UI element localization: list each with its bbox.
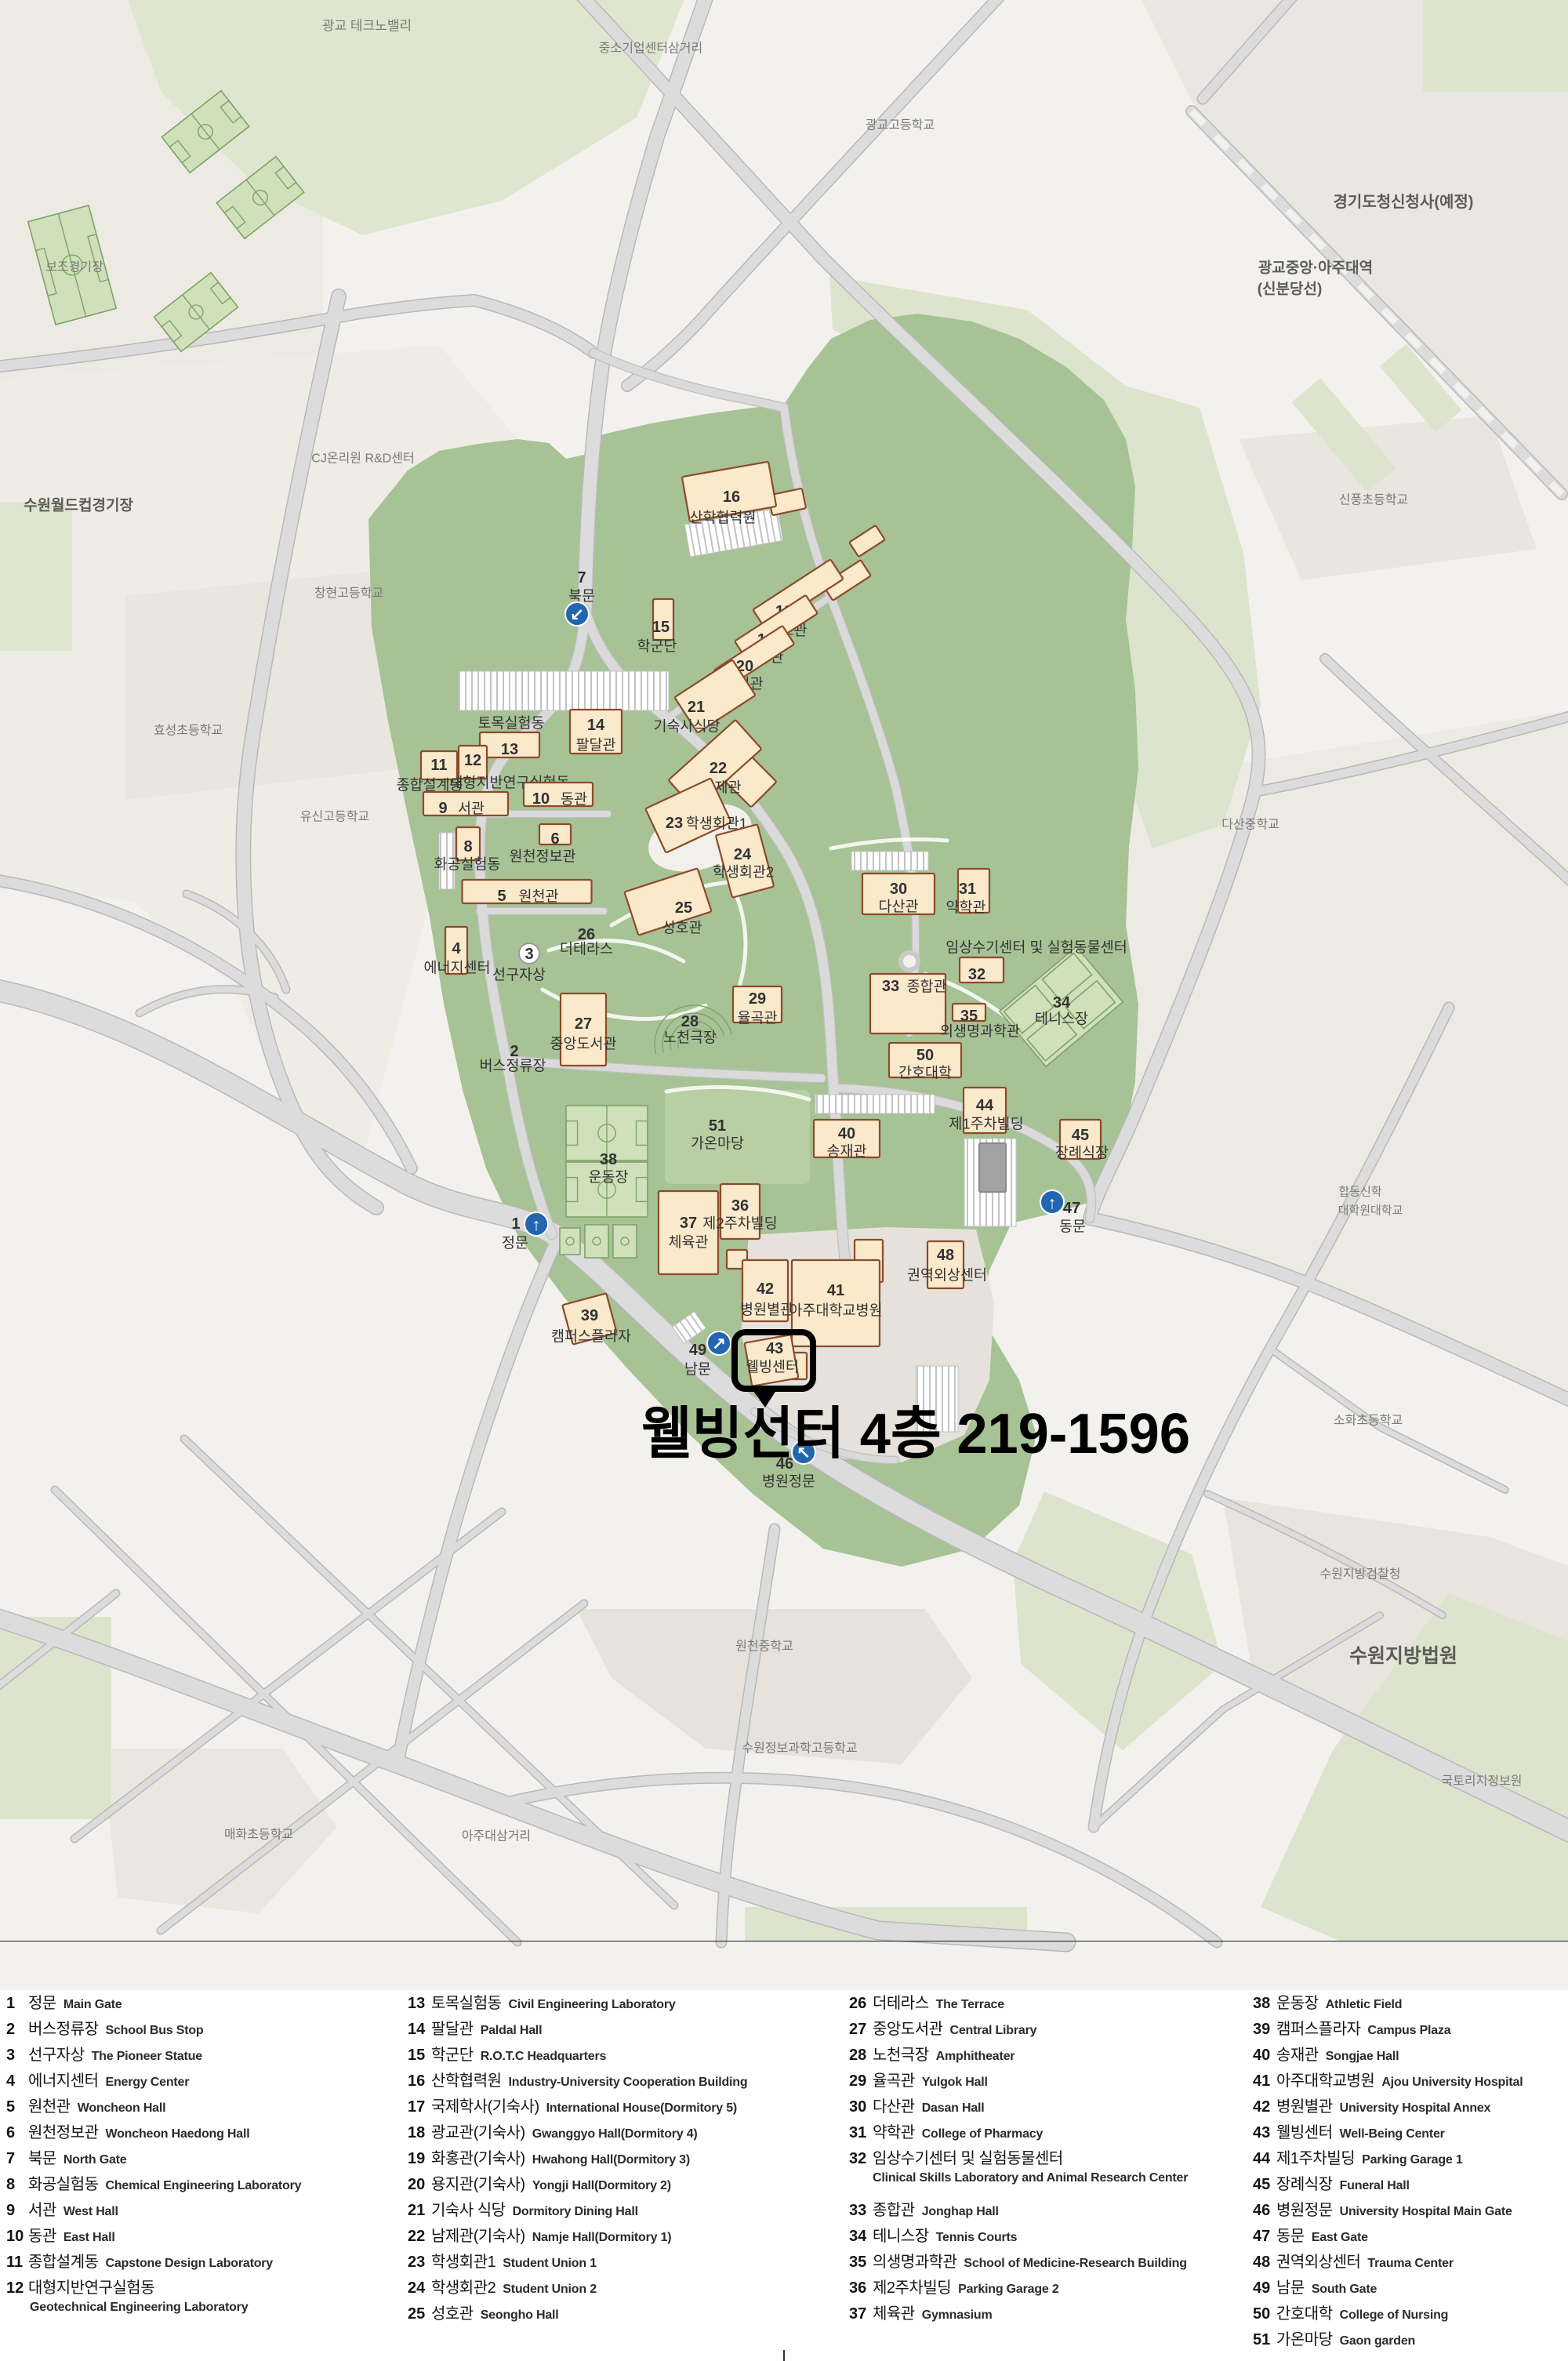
marker-number: 16 [723, 489, 740, 506]
legend-english-name: Dormitory Dining Hall [513, 2205, 638, 2219]
place-label: 효성초등학교 [154, 724, 223, 738]
marker-name: 아주대학교병원 [789, 1302, 882, 1319]
legend-item-8: 8화공실험동Chemical Engineering Laboratory [6, 2171, 301, 2197]
marker-number: 31 [959, 881, 976, 898]
gate-arrow-icon: ↙ [570, 605, 584, 625]
marker-name: 북문 [568, 588, 595, 605]
legend-number: 46 [1253, 2202, 1276, 2220]
legend-english-name: Industry-University Cooperation Building [509, 2076, 748, 2090]
legend-korean-name: 버스정류장 [28, 2016, 99, 2039]
legend-english-name: University Hospital Annex [1340, 2101, 1491, 2116]
annotation-text: 웰빙선터 4층 219-1596 [641, 1403, 1190, 1466]
legend-number: 2 [6, 2021, 28, 2039]
place-label: 수원월드컵경기장 [24, 497, 133, 514]
legend-english-name: Woncheon Hall [78, 2101, 166, 2116]
marker-name: 임상수기센터 및 실험동물센터 [946, 939, 1127, 956]
marker-number: 11 [430, 757, 447, 774]
legend-english-name: University Hospital Main Gate [1340, 2205, 1512, 2219]
legend-item-41: 41아주대학교병원Ajou University Hospital [1253, 2068, 1523, 2094]
gate-icon: ↗ [707, 1331, 731, 1355]
legend-korean-name: 북문 [28, 2145, 56, 2168]
legend-column-1: 1정문Main Gate2버스정류장School Bus Stop3선구자상Th… [6, 1990, 301, 2326]
legend-number: 51 [1253, 2331, 1276, 2349]
legend-number: 32 [849, 2150, 873, 2168]
legend-korean-name: 운동장 [1276, 1990, 1319, 2013]
legend-english-name: South Gate [1312, 2283, 1377, 2297]
legend-item-47: 47동문East Gate [1253, 2223, 1523, 2249]
marker-name: 노천극장 [663, 1030, 717, 1046]
legend-korean-name: 노천극장 [873, 2042, 929, 2065]
legend-item-11: 11종합설계동Capstone Design Laboratory [6, 2249, 301, 2275]
marker-number: 4 [452, 940, 461, 957]
legend-english-name: The Terrace [936, 1998, 1004, 2012]
marker-name: 테니스장 [1035, 1011, 1088, 1027]
legend-item-1: 1정문Main Gate [6, 1990, 301, 2016]
place-label: (신분당선) [1258, 281, 1323, 298]
marker-name: 체육관 [668, 1234, 708, 1251]
legend-korean-name: 성호관 [431, 2301, 474, 2323]
legend-korean-name: 원천관 [28, 2094, 71, 2116]
legend-english-name: Songjae Hall [1326, 2050, 1399, 2064]
parking-lot [851, 852, 928, 870]
map-marker: 토목실험동13 [477, 715, 544, 759]
marker-number: 3 [524, 946, 533, 963]
legend-korean-name: 선구자상 [28, 2042, 85, 2065]
marker-number: 7 [577, 569, 586, 587]
legend-item-39: 39캠퍼스플라자Campus Plaza [1253, 2016, 1523, 2042]
marker-name: 웰빙센터 [746, 1359, 799, 1375]
legend-korean-name: 웰빙센터 [1276, 2119, 1333, 2142]
legend-english-name: Namje Hall(Dormitory 1) [532, 2231, 672, 2245]
gate-arrow-icon: ↑ [1048, 1193, 1057, 1213]
legend-number: 48 [1253, 2254, 1276, 2272]
marker-name: 정문 [502, 1235, 528, 1251]
legend-english-name: Civil Engineering Laboratory [509, 1998, 676, 2012]
marker-name: 팔달관 [575, 737, 615, 754]
marker-number: 25 [675, 899, 692, 917]
legend-number: 5 [6, 2098, 28, 2116]
map-marker: 45장례식장 [1055, 1120, 1109, 1161]
legend-english-name: College of Pharmacy [922, 2127, 1043, 2141]
campus-map-page: 광교 테크노밸리중소기업센터삼거리광교고등학교경기도청신청사(예정)광교중앙·아… [0, 0, 1568, 2361]
place-label: 경기도청신청사(예정) [1334, 193, 1474, 211]
legend-item-25: 25성호관Seongho Hall [408, 2301, 747, 2326]
legend-english-name: The Pioneer Statue [92, 2050, 202, 2064]
map-marker: 37체육관 [659, 1191, 718, 1274]
legend-korean-name: 율곡관 [873, 2068, 915, 2090]
legend-number: 33 [849, 2202, 873, 2220]
legend-english-name: Well-Being Center [1340, 2127, 1445, 2141]
legend-number: 25 [408, 2305, 431, 2323]
place-label: CJ온리원 R&D센터 [311, 452, 414, 466]
legend-korean-name: 중앙도서관 [873, 2016, 943, 2039]
marker-number: 23 [666, 815, 683, 832]
place-label: 수원지방검찰청 [1319, 1567, 1400, 1582]
legend-number: 6 [6, 2124, 28, 2142]
marker-number: 12 [464, 752, 481, 769]
legend-item-13: 13토목실험동Civil Engineering Laboratory [408, 1990, 747, 2016]
place-label: 아주대삼거리 [462, 1829, 531, 1843]
legend-korean-name: 화공실험동 [28, 2171, 99, 2194]
legend-korean-name: 정문 [28, 1990, 56, 2013]
place-label: 다산중학교 [1221, 818, 1279, 832]
legend-item-23: 23학생회관1Student Union 1 [408, 2249, 747, 2275]
legend-item-5: 5원천관Woncheon Hall [6, 2094, 301, 2119]
marker-number: 34 [1053, 994, 1071, 1012]
legend-korean-name: 동관 [28, 2223, 56, 2246]
legend-item-18: 18광교관(기숙사)Gwanggyo Hall(Dormitory 4) [408, 2119, 747, 2145]
legend-english-name: Trauma Center [1367, 2257, 1453, 2271]
legend-korean-name: 서관 [28, 2197, 56, 2220]
legend-english-name: R.O.T.C Headquarters [481, 2050, 607, 2064]
legend-item-19: 19화홍관(기숙사)Hwahong Hall(Dormitory 3) [408, 2145, 747, 2171]
legend-item-24: 24학생회관2Student Union 2 [408, 2275, 747, 2301]
legend-number: 49 [1253, 2279, 1276, 2297]
legend-number: 8 [6, 2176, 28, 2194]
legend-item-34: 34테니스장Tennis Courts [849, 2223, 1188, 2249]
marker-name: 서관 [458, 801, 485, 817]
legend-korean-name: 가온마당 [1276, 2326, 1333, 2349]
marker-name: 중앙도서관 [550, 1036, 616, 1052]
legend-item-29: 29율곡관Yulgok Hall [849, 2068, 1188, 2094]
legend-column-2: 13토목실험동Civil Engineering Laboratory14팔달관… [408, 1990, 747, 2326]
legend-english-name: Energy Center [106, 2076, 190, 2090]
legend-korean-name: 기숙사 식당 [431, 2197, 506, 2220]
marker-name: 종합관 [906, 979, 946, 995]
marker-name: 제2주차빌딩 [702, 1215, 777, 1232]
legend-number: 14 [408, 2021, 431, 2039]
marker-number: 27 [575, 1015, 592, 1033]
legend-number: 18 [408, 2124, 431, 2142]
legend-number: 47 [1253, 2228, 1276, 2246]
legend-item-7: 7북문North Gate [6, 2145, 301, 2171]
legend-item-42: 42병원별관University Hospital Annex [1253, 2094, 1523, 2119]
legend-number: 20 [408, 2176, 431, 2194]
marker-number: 6 [550, 830, 559, 848]
map-marker: 5원천관 [463, 880, 592, 905]
legend-item-21: 21기숙사 식당Dormitory Dining Hall [408, 2197, 747, 2223]
legend-korean-name: 병원정문 [1276, 2197, 1333, 2220]
map-marker: 43웰빙센터 [745, 1335, 799, 1386]
legend-item-32: 32임상수기센터 및 실험동물센터 [849, 2145, 1188, 2171]
legend-english-name: Funeral Hall [1340, 2179, 1410, 2193]
marker-name: 학생회관2 [713, 864, 774, 881]
legend-number: 4 [6, 2072, 28, 2090]
legend-number: 19 [408, 2150, 431, 2168]
place-label: 소화초등학교 [1334, 1414, 1403, 1428]
marker-number: 21 [688, 699, 705, 716]
marker-number: 40 [838, 1125, 855, 1142]
legend-number: 30 [849, 2098, 873, 2116]
legend-number: 41 [1253, 2072, 1276, 2090]
legend-number: 7 [6, 2150, 28, 2168]
legend-korean-name: 약학관 [873, 2119, 915, 2142]
legend-column-3: 26더테라스The Terrace27중앙도서관Central Library2… [849, 1990, 1188, 2326]
legend-number: 9 [6, 2202, 28, 2220]
legend-korean-name: 동문 [1276, 2223, 1305, 2246]
legend-english-name: Hwahong Hall(Dormitory 3) [532, 2153, 690, 2167]
legend-number: 12 [6, 2279, 28, 2297]
legend-english-name: Amphitheater [936, 2050, 1015, 2064]
legend-korean-name: 원천정보관 [28, 2119, 99, 2142]
legend-korean-name: 남문 [1276, 2275, 1305, 2297]
legend-item-33: 33종합관Jonghap Hall [849, 2197, 1188, 2223]
marker-name: 제1주차빌딩 [949, 1116, 1023, 1132]
legend-number: 44 [1253, 2150, 1276, 2168]
marker-name: 간호대학 [898, 1065, 952, 1081]
legend-korean-name: 임상수기센터 및 실험동물센터 [873, 2145, 1063, 2168]
gate-icon: ↑ [524, 1212, 548, 1236]
legend-number: 39 [1253, 2021, 1276, 2039]
legend-english-name: Tennis Courts [936, 2231, 1018, 2245]
place-label: 보조경기장 [45, 260, 103, 274]
legend-english-name: East Gate [1312, 2231, 1368, 2245]
legend-korean-name: 용지관(기숙사) [431, 2171, 525, 2194]
campus-map: 광교 테크노밸리중소기업센터삼거리광교고등학교경기도청신청사(예정)광교중앙·아… [0, 0, 1568, 1990]
marker-name: 더테라스 [560, 941, 613, 957]
legend-number: 43 [1253, 2124, 1276, 2142]
legend-item-43: 43웰빙센터Well-Being Center [1253, 2119, 1523, 2145]
marker-name: 운동장 [588, 1169, 628, 1186]
legend-english-name: Capstone Design Laboratory [106, 2257, 274, 2271]
marker-name: 송재관 [826, 1143, 866, 1160]
marker-number: 36 [731, 1197, 749, 1215]
legend-item-40: 40송재관Songjae Hall [1253, 2042, 1523, 2068]
legend-korean-name: 장례식장 [1276, 2171, 1333, 2194]
legend-english-name: Yulgok Hall [922, 2076, 988, 2090]
marker-number: 42 [757, 1280, 774, 1298]
legend-korean-name: 남제관(기숙사) [431, 2223, 525, 2246]
legend-item-15: 15학군단R.O.T.C Headquarters [408, 2042, 747, 2068]
marker-name: 동관 [561, 791, 587, 808]
marker-number: 30 [890, 881, 907, 898]
legend-item-2: 2버스정류장School Bus Stop [6, 2016, 301, 2042]
legend-korean-name: 병원별관 [1276, 2094, 1333, 2116]
place-label: 매화초등학교 [224, 1828, 293, 1842]
legend-korean-name: 산학협력원 [431, 2068, 502, 2090]
map-marker: 42병원별관 [740, 1260, 793, 1321]
legend-korean-name: 에너지센터 [28, 2068, 99, 2090]
legend-column-4: 38운동장Athletic Field39캠퍼스플라자Campus Plaza4… [1253, 1990, 1523, 2352]
legend-number: 45 [1253, 2176, 1276, 2194]
legend-item-26: 26더테라스The Terrace [849, 1990, 1188, 2016]
legend-korean-name: 토목실험동 [431, 1990, 502, 2013]
map-marker: 50간호대학 [889, 1043, 961, 1081]
legend-korean-name: 더테라스 [873, 1990, 929, 2013]
marker-number: 10 [532, 790, 550, 808]
legend-number: 16 [408, 2072, 431, 2090]
marker-number: 50 [916, 1047, 934, 1064]
legend-korean-name: 학생회관1 [431, 2249, 495, 2272]
marker-number: 51 [709, 1117, 726, 1135]
marker-name: 산학협력원 [689, 510, 756, 526]
marker-name: 토목실험동 [477, 715, 544, 732]
legend-english-name: Jonghap Hall [922, 2205, 999, 2219]
legend-english-name: Dasan Hall [922, 2101, 985, 2116]
gate-icon: ↙ [565, 602, 589, 626]
marker-number: 41 [827, 1282, 844, 1299]
legend-item-31: 31약학관College of Pharmacy [849, 2119, 1188, 2145]
marker-number: 29 [749, 990, 766, 1008]
building [979, 1143, 1006, 1192]
marker-number: 48 [937, 1247, 954, 1264]
marker-name: 에너지센터 [423, 960, 490, 976]
legend-item-38: 38운동장Athletic Field [1253, 1990, 1523, 2016]
marker-name: 원천정보관 [509, 848, 575, 865]
marker-name: 선구자상 [492, 967, 546, 983]
legend-korean-name: 권역외상센터 [1276, 2249, 1360, 2272]
legend-item-36: 36제2주차빌딩Parking Garage 2 [849, 2275, 1188, 2301]
legend-item-14: 14팔달관Paldal Hall [408, 2016, 747, 2042]
legend-item-37: 37체육관Gymnasium [849, 2301, 1188, 2326]
map-marker: 10동관 [524, 783, 593, 808]
marker-number: 8 [463, 838, 472, 855]
legend-english-name: International House(Dormitory 5) [546, 2101, 737, 2116]
legend-korean-name: 대형지반연구실험동 [28, 2275, 154, 2297]
legend-korean-name: 학군단 [431, 2042, 474, 2065]
legend-item-32-english: Clinical Skills Laboratory and Animal Re… [849, 2171, 1188, 2197]
legend-english-name: Paldal Hall [481, 2024, 543, 2038]
place-label: 창현고등학교 [314, 587, 383, 601]
legend-number: 28 [849, 2047, 873, 2065]
legend-english-name: Woncheon Haedong Hall [106, 2127, 250, 2141]
legend-number: 21 [408, 2202, 431, 2220]
legend-number: 50 [1253, 2305, 1276, 2323]
place-label: 신풍초등학교 [1339, 493, 1408, 507]
marker-number: 14 [587, 717, 605, 734]
legend-korean-name: 캠퍼스플라자 [1276, 2016, 1360, 2039]
legend-korean-name: 화홍관(기숙사) [431, 2145, 525, 2168]
marker-number: 45 [1072, 1127, 1089, 1144]
legend-korean-name: 테니스장 [873, 2223, 929, 2246]
legend-korean-name: 학생회관2 [431, 2275, 495, 2297]
basketball-court [560, 1228, 580, 1255]
legend-english-name: Parking Garage 1 [1362, 2153, 1462, 2167]
legend-english-name: Parking Garage 2 [958, 2283, 1058, 2297]
place-label: 대학원대학교 [1338, 1204, 1403, 1218]
legend-item-46: 46병원정문University Hospital Main Gate [1253, 2197, 1523, 2223]
legend-number: 11 [6, 2254, 28, 2272]
legend-item-10: 10동관East Hall [6, 2223, 301, 2249]
basketball-court [585, 1225, 608, 1258]
marker-name: 종합설계동 [396, 777, 463, 794]
marker-name: 다산관 [878, 899, 918, 915]
legend-english-name: Geotechnical Engineering Laboratory [30, 2301, 248, 2315]
marker-name: 학군단 [637, 638, 677, 655]
map-marker: 29율곡관 [733, 986, 782, 1026]
legend-item-49: 49남문South Gate [1253, 2275, 1523, 2301]
gate-icon: ↑ [1040, 1190, 1064, 1214]
legend-english-name: Central Library [950, 2024, 1037, 2038]
map-marker: 30다산관 [862, 874, 935, 915]
place-label: 광교고등학교 [866, 118, 935, 133]
marker-name: 버스정류장 [479, 1058, 546, 1074]
parking-lot [459, 671, 669, 710]
place-label: 수원정보과학고등학교 [742, 1742, 857, 1756]
legend-item-51: 51가온마당Gaon garden [1253, 2326, 1523, 2352]
legend-korean-name: 체육관 [873, 2301, 915, 2323]
legend-korean-name: 아주대학교병원 [1276, 2068, 1374, 2090]
rotary [901, 953, 918, 970]
legend-english-name: Ajou University Hospital [1381, 2076, 1523, 2090]
marker-name: 약학관 [946, 899, 985, 916]
legend-number: 3 [6, 2047, 28, 2065]
legend-number: 24 [408, 2279, 431, 2297]
legend-english-name: West Hall [64, 2205, 118, 2219]
marker-name: 의생명과학관 [940, 1023, 1020, 1040]
marker-number: 22 [710, 760, 727, 777]
legend-number: 40 [1253, 2047, 1276, 2065]
legend-english-name: Student Union 2 [503, 2283, 597, 2297]
legend-number: 36 [849, 2279, 873, 2297]
place-label: 국토리지정보원 [1441, 1774, 1522, 1789]
legend-english-name: College of Nursing [1340, 2308, 1449, 2323]
map-marker: 14팔달관 [570, 710, 622, 754]
place-label: 합동신학 [1338, 1186, 1381, 1199]
parking-lot [815, 1095, 935, 1113]
legend-korean-name: 간호대학 [1276, 2301, 1333, 2323]
legend-english-name: School of Medicine-Research Building [964, 2257, 1186, 2271]
map-marker: 40송재관 [814, 1120, 880, 1160]
gate-arrow-icon: ↗ [712, 1335, 726, 1354]
marker-number: 38 [600, 1151, 617, 1168]
marker-number: 33 [882, 978, 899, 995]
marker-name: 남문 [684, 1361, 711, 1378]
legend-number: 35 [849, 2254, 873, 2272]
legend-english-name: Main Gate [64, 1998, 122, 2012]
marker-number: 28 [681, 1013, 699, 1030]
legend-item-30: 30다산관Dasan Hall [849, 2094, 1188, 2119]
marker-name: 동문 [1059, 1219, 1086, 1235]
marker-number: 39 [581, 1307, 598, 1324]
marker-number: 13 [501, 741, 518, 758]
legend-item-44: 44제1주차빌딩Parking Garage 1 [1253, 2145, 1523, 2171]
legend-number: 31 [849, 2124, 873, 2142]
gate-arrow-icon: ↑ [532, 1215, 541, 1235]
marker-name: 캠퍼스플라자 [551, 1328, 631, 1345]
map-marker: 9서관 [423, 792, 508, 817]
marker-number: 1 [511, 1215, 520, 1233]
marker-name: 장례식장 [1055, 1145, 1109, 1161]
legend-korean-name: 광교관(기숙사) [431, 2119, 525, 2142]
legend-item-27: 27중앙도서관Central Library [849, 2016, 1188, 2042]
marker-number: 37 [680, 1215, 697, 1232]
legend-korean-name: 제2주차빌딩 [873, 2275, 951, 2297]
marker-number: 5 [497, 888, 506, 905]
legend-number: 42 [1253, 2098, 1276, 2116]
legend-item-28: 28노천극장Amphitheater [849, 2042, 1188, 2068]
legend-english-name: North Gate [64, 2153, 127, 2167]
legend-number: 37 [849, 2305, 873, 2323]
legend-english-name: Student Union 1 [503, 2257, 597, 2271]
marker-name: 원천관 [518, 888, 558, 905]
map-marker: 33종합관 [870, 974, 947, 1033]
legend-number: 13 [408, 1995, 431, 2013]
legend-number: 27 [849, 2021, 873, 2039]
legend-item-12-english: Geotechnical Engineering Laboratory [6, 2301, 301, 2326]
legend-english-name: Gwanggyo Hall(Dormitory 4) [532, 2127, 698, 2141]
legend-number: 26 [849, 1995, 873, 2013]
marker-name: 성호관 [662, 920, 702, 936]
legend-korean-name: 송재관 [1276, 2042, 1319, 2065]
marker-number: 49 [689, 1342, 706, 1359]
marker-name: 권역외상센터 [907, 1267, 987, 1284]
legend-number: 23 [408, 2254, 431, 2272]
marker-number: 32 [968, 966, 985, 983]
legend-item-22: 22남제관(기숙사)Namje Hall(Dormitory 1) [408, 2223, 747, 2249]
legend-english-name: Clinical Skills Laboratory and Animal Re… [873, 2171, 1188, 2185]
legend-english-name: Seongho Hall [481, 2308, 559, 2323]
